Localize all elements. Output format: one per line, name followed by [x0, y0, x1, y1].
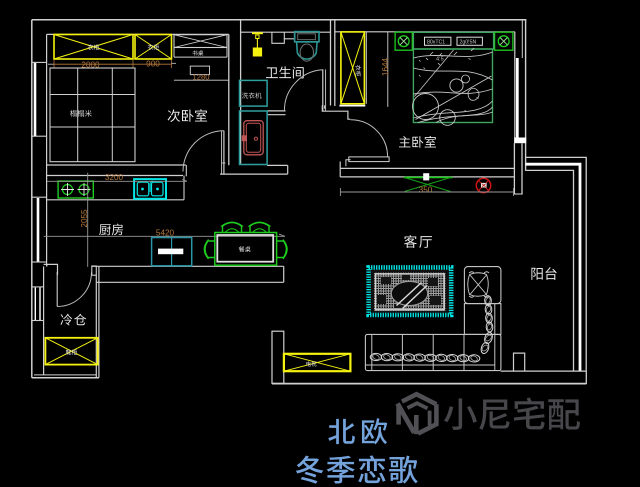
- svg-text:2055: 2055: [80, 209, 89, 228]
- svg-text:1280: 1280: [193, 72, 210, 81]
- svg-text:3200: 3200: [105, 173, 124, 182]
- svg-text:900: 900: [146, 59, 160, 68]
- svg-text:1644: 1644: [381, 57, 390, 76]
- svg-text:80xTC1: 80xTC1: [427, 39, 445, 45]
- svg-text:2g0!5N: 2g0!5N: [460, 39, 477, 45]
- svg-text:350: 350: [419, 185, 433, 194]
- svg-text:5420: 5420: [156, 229, 175, 238]
- svg-text:4:5: 4:5: [436, 57, 444, 63]
